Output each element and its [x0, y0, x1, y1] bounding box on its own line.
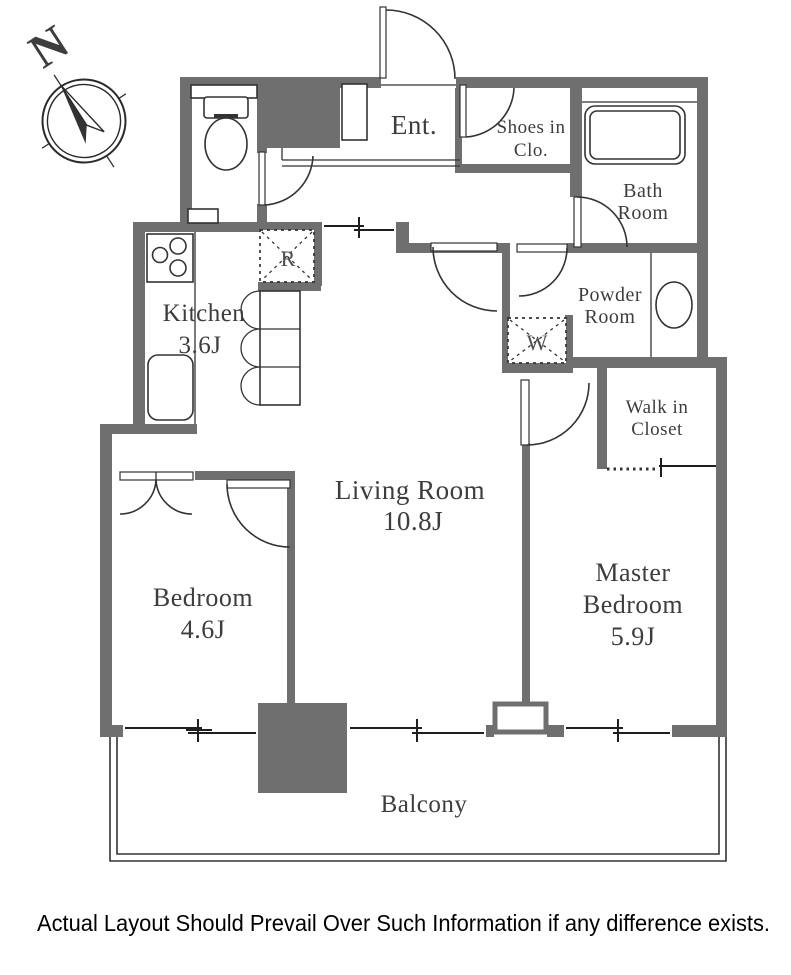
bedroom-window	[123, 719, 258, 742]
master-bedroom-area	[521, 380, 716, 477]
master-bedroom-size-label: 5.9J	[611, 622, 656, 651]
living-room-door	[431, 243, 497, 251]
balcony-label: Balcony	[381, 791, 468, 818]
living-room-size-label: 10.8J	[383, 506, 443, 536]
kitchen-size-label: 3.6J	[179, 332, 222, 359]
toilet-shelf-top	[191, 85, 257, 98]
shoes-closet-label-2: Clo.	[514, 140, 548, 161]
room-labels: Ent. Shoes in Clo. Bath Room Powder Room…	[153, 110, 688, 818]
master-bedroom-door-swing	[527, 383, 589, 445]
service-shaft	[266, 77, 340, 148]
living-room-door-swing	[433, 247, 497, 311]
kitchen-label: Kitchen	[163, 300, 246, 327]
powder-label-2: Room	[585, 306, 636, 328]
floor-plan-page: N	[0, 0, 791, 975]
toilet-door	[259, 152, 265, 205]
compass-north-label: N	[20, 15, 78, 79]
vanity-sink	[656, 282, 692, 328]
washer-marker: W	[527, 330, 548, 355]
bedroom-label: Bedroom	[153, 583, 253, 612]
bath-room-area	[574, 102, 697, 247]
pillar	[258, 703, 347, 793]
bedroom-door-swing	[227, 484, 290, 547]
kitchen-island-counter	[260, 291, 300, 405]
master-bedroom-label-2: Bedroom	[583, 590, 683, 619]
closet-door-swing-left	[120, 480, 156, 514]
living-room-door-group	[431, 243, 497, 311]
living-window	[348, 719, 486, 742]
entrance-label: Ent.	[391, 110, 437, 140]
wall-niche	[495, 704, 546, 732]
master-window	[564, 719, 672, 742]
walk-in-closet-label-2: Closet	[631, 419, 683, 440]
toilet-door-swing	[265, 156, 313, 205]
floor-plan-drawing: N	[0, 0, 791, 975]
refrigerator-marker: R	[281, 246, 296, 271]
toilet-shelf	[188, 209, 218, 223]
bath-label-1: Bath	[623, 180, 663, 202]
entrance-door	[380, 7, 386, 78]
compass: N	[12, 15, 156, 194]
bedroom-area	[120, 472, 290, 547]
living-room-label: Living Room	[335, 475, 485, 505]
master-bedroom-label-1: Master	[595, 558, 670, 587]
bath-label-2: Room	[618, 202, 669, 224]
bath-door	[574, 197, 581, 247]
bedroom-size-label: 4.6J	[181, 615, 226, 644]
shoes-closet-label-1: Shoes in	[497, 117, 566, 138]
entrance-door-swing	[386, 10, 455, 79]
master-bedroom-door	[521, 380, 529, 445]
disclaimer-text: Actual Layout Should Prevail Over Such I…	[37, 910, 770, 936]
walk-in-closet-label-1: Walk in	[626, 397, 689, 418]
kitchen-sliding-door	[322, 217, 396, 238]
kitchen-sink	[148, 355, 193, 420]
toilet-bowl	[205, 118, 247, 170]
powder-label-1: Powder	[578, 284, 642, 306]
powder-door-swing	[519, 248, 567, 296]
bedroom-door	[227, 480, 290, 488]
closet-door-swing-right	[156, 480, 192, 514]
entrance-cabinet	[342, 84, 367, 140]
shoes-closet-door	[460, 85, 466, 137]
powder-door	[517, 244, 567, 252]
